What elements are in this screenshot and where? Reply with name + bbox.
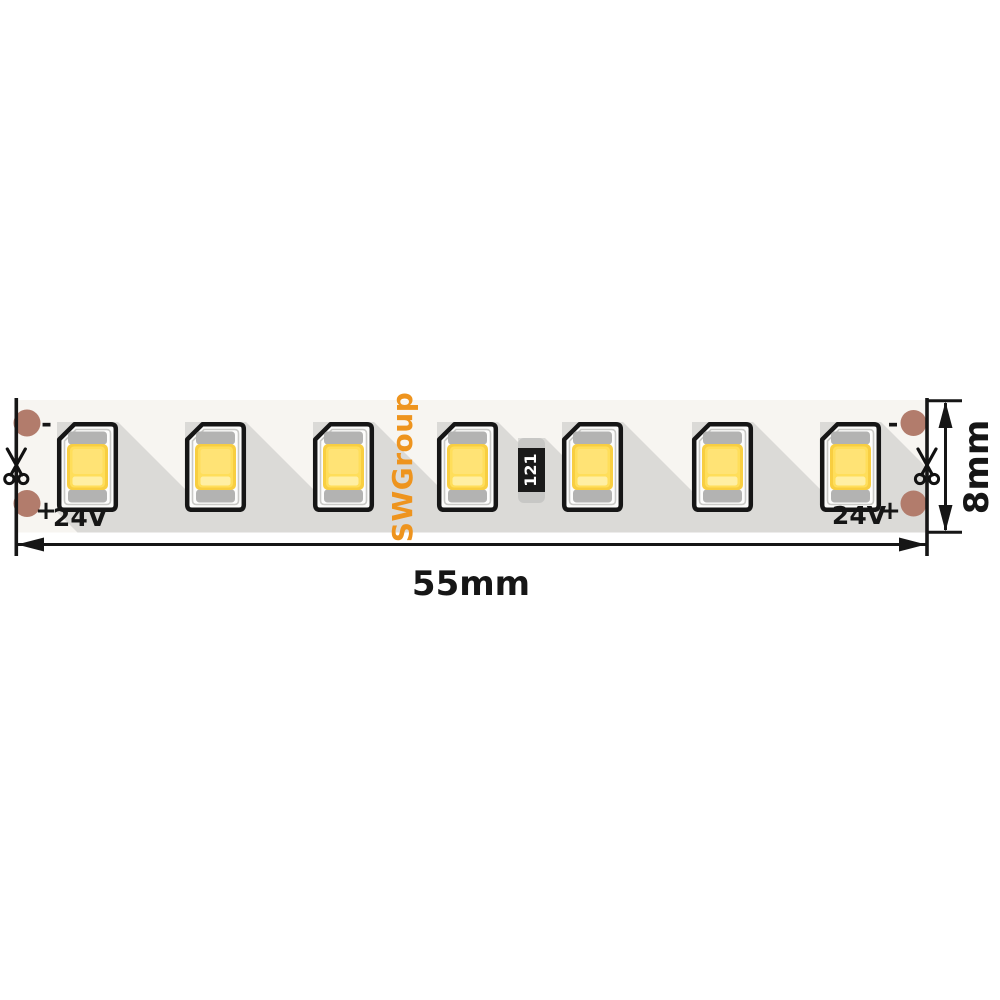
voltage-label-left: 24V <box>53 503 108 532</box>
led-module-2 <box>187 424 244 510</box>
solder-pad <box>901 491 927 517</box>
height-dimension-label: 8mm <box>957 420 997 515</box>
led-module-3 <box>315 424 372 510</box>
width-dimension <box>17 538 926 552</box>
led-module-1 <box>59 424 116 510</box>
brand-text: SWGroup <box>386 392 419 543</box>
led-module-6 <box>694 424 751 510</box>
resistor: 121 <box>518 438 545 503</box>
led-module-4 <box>439 424 496 510</box>
polarity-minus-left: - <box>41 409 52 439</box>
solder-pad <box>901 410 927 436</box>
led-module-7 <box>822 424 879 510</box>
arrowhead-top <box>939 402 953 429</box>
arrowhead-bottom <box>939 505 953 532</box>
led-strip-diagram: 121 SWGroup - + 24V - + 24V 55mm 8mm <box>0 0 1000 1000</box>
arrowhead-right <box>899 538 926 552</box>
led-module-5 <box>564 424 621 510</box>
voltage-label-right: 24V <box>832 501 887 530</box>
width-dimension-label: 55mm <box>412 564 530 604</box>
polarity-minus-right: - <box>888 409 899 439</box>
resistor-code-label: 121 <box>521 453 540 486</box>
led-strip-product-image: 121 SWGroup - + 24V - + 24V 55mm 8mm <box>0 0 1000 1000</box>
arrowhead-left <box>17 538 44 552</box>
